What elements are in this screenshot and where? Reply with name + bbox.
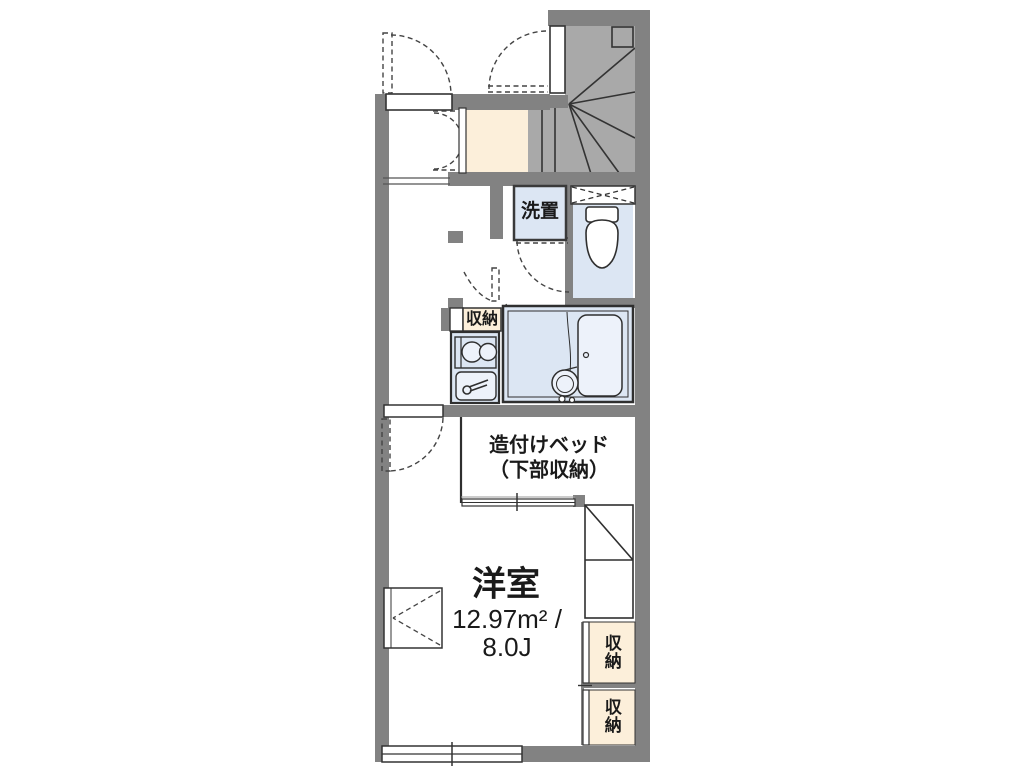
bed-label-line2: （下部収納） xyxy=(489,460,609,483)
storage-door-lower xyxy=(583,690,589,745)
storage-upper-label: 収納 xyxy=(601,634,621,670)
wall-unit-symbol xyxy=(384,588,442,648)
refrigerator-space xyxy=(585,505,633,618)
bed-label-line1: 造付けベッド xyxy=(489,435,609,458)
room-name-label: 洋室 xyxy=(472,565,540,604)
room-door-opening xyxy=(384,405,443,417)
entry-door-opening-top xyxy=(386,94,452,110)
bathtub-icon xyxy=(578,315,622,396)
bathroom xyxy=(503,306,633,403)
room-size-label: 8.0J xyxy=(482,633,531,663)
kitchen-unit xyxy=(451,332,499,403)
entry-genkan-floor xyxy=(466,110,528,174)
storage-door-upper xyxy=(583,622,589,683)
kitchen-storage-label: 収納 xyxy=(466,311,498,329)
room-area-label: 12.97m² / xyxy=(452,605,562,635)
kitchen-window-box xyxy=(450,308,463,331)
toilet-icon xyxy=(586,207,618,268)
floorplan-canvas: 洗置 収納 造付けベッド （下部収納） 洋室 12.97m² / 8.0J 収納… xyxy=(0,0,1017,772)
sink-icon xyxy=(456,372,496,400)
bottom-window xyxy=(382,742,522,766)
closet-bottom-opening xyxy=(383,178,450,184)
storage-lower-label: 収納 xyxy=(601,698,621,734)
pipe-space-box xyxy=(612,27,633,47)
front-door-opening xyxy=(550,26,565,93)
closet-door-track xyxy=(459,108,466,173)
toilet-window xyxy=(571,186,635,204)
washer-label: 洗置 xyxy=(521,201,559,223)
